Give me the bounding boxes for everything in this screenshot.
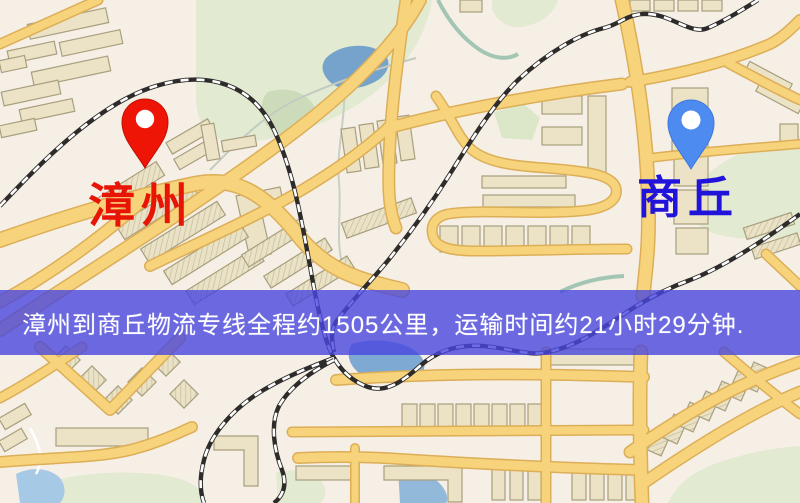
origin-label: 漳州 (88, 181, 194, 233)
destination-label: 商丘 (637, 173, 739, 223)
banner-text: 漳州到商丘物流专线全程约1505公里，运输时间约21小时29分钟. (22, 305, 744, 340)
route-banner: 漳州到商丘物流专线全程约1505公里，运输时间约21小时29分钟. (0, 290, 800, 355)
map-screenshot: 漳州 商丘 漳州到商丘物流专线全程约1505公里，运输时间约21小时29分钟. (0, 0, 800, 503)
map-canvas[interactable]: 漳州 商丘 (0, 0, 800, 503)
